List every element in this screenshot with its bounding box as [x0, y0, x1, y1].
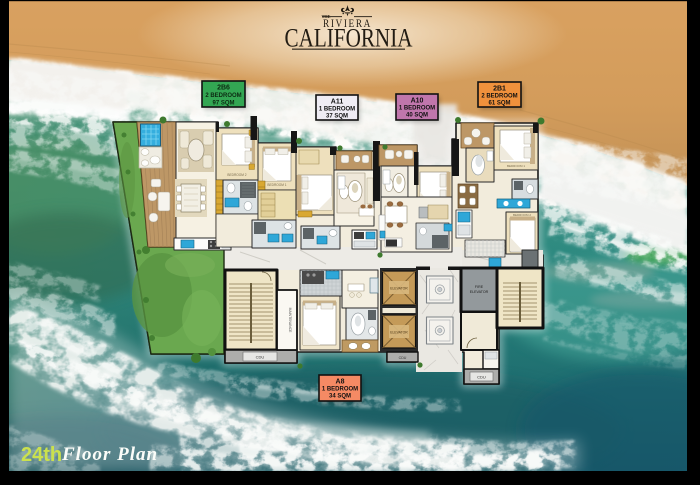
- svg-text:2B6: 2B6: [217, 85, 230, 92]
- svg-text:A8: A8: [336, 379, 345, 386]
- svg-text:2 BEDROOM: 2 BEDROOM: [205, 93, 241, 99]
- svg-text:ELEVATOR: ELEVATOR: [470, 290, 489, 294]
- svg-text:1 BEDROOM: 1 BEDROOM: [399, 106, 435, 112]
- svg-text:Floor Plan: Floor Plan: [61, 444, 158, 465]
- svg-text:BEDROOM 1: BEDROOM 1: [507, 164, 525, 168]
- svg-text:2 BEDROOM: 2 BEDROOM: [481, 94, 517, 100]
- svg-text:37 SQM: 37 SQM: [326, 114, 348, 120]
- svg-text:ELEVATOR: ELEVATOR: [390, 287, 408, 291]
- svg-text:2B1: 2B1: [493, 86, 506, 93]
- svg-text:ELEVATOR: ELEVATOR: [390, 331, 408, 335]
- svg-text:CDU: CDU: [399, 356, 407, 360]
- svg-text:FIRE: FIRE: [475, 285, 484, 289]
- svg-text:CDU: CDU: [477, 375, 486, 380]
- svg-text:61 SQM: 61 SQM: [488, 101, 510, 107]
- svg-text:CALIFORNIA: CALIFORNIA: [285, 24, 413, 53]
- svg-text:A11: A11: [331, 99, 344, 106]
- svg-text:34 SQM: 34 SQM: [329, 394, 351, 400]
- svg-text:BEDROOM 1: BEDROOM 1: [267, 183, 286, 187]
- svg-text:A10: A10: [411, 98, 424, 105]
- svg-text:24th: 24th: [21, 444, 62, 466]
- svg-text:40 SQM: 40 SQM: [406, 113, 428, 119]
- svg-text:BEDROOM 2: BEDROOM 2: [227, 173, 246, 177]
- svg-text:BEDROOM 2: BEDROOM 2: [513, 213, 531, 217]
- svg-text:97 SQM: 97 SQM: [212, 101, 234, 107]
- svg-text:1 BEDROOM: 1 BEDROOM: [322, 387, 358, 393]
- svg-text:1 BEDROOM: 1 BEDROOM: [319, 107, 355, 113]
- svg-text:MAINTENANCE: MAINTENANCE: [288, 308, 292, 333]
- svg-text:CDU: CDU: [256, 355, 265, 360]
